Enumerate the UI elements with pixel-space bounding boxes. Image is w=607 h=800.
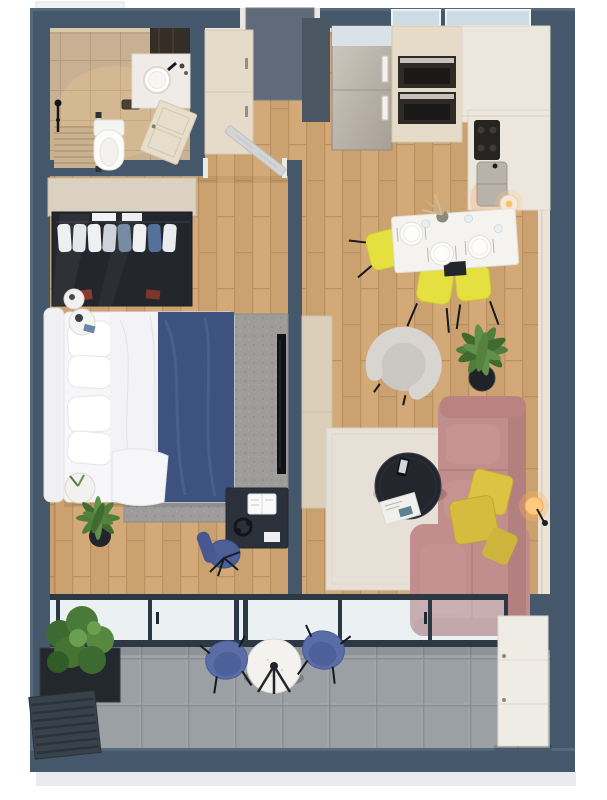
bottle bbox=[184, 71, 188, 75]
cabinet-handle bbox=[502, 698, 506, 702]
glass-wardrobe bbox=[48, 178, 196, 306]
duvet-drape bbox=[112, 449, 168, 506]
glass bbox=[422, 219, 431, 228]
door-handle bbox=[424, 612, 427, 624]
storage-box bbox=[146, 289, 161, 299]
wardrobe-handle bbox=[245, 106, 248, 117]
desk bbox=[226, 488, 288, 548]
oven-lower bbox=[398, 92, 456, 124]
cabinet-handle bbox=[502, 654, 506, 658]
parapet-highlight bbox=[30, 748, 575, 751]
oven-column bbox=[392, 26, 462, 142]
nightstand-bottom bbox=[65, 473, 95, 503]
sofa-arm-top bbox=[440, 396, 526, 418]
storage-cabinet bbox=[494, 616, 552, 751]
wall-bathroom-east bbox=[190, 28, 205, 160]
window-1 bbox=[392, 10, 440, 26]
vase bbox=[75, 314, 83, 322]
glass-post bbox=[96, 112, 102, 118]
tv-sheen bbox=[279, 340, 281, 468]
headboard bbox=[44, 308, 64, 502]
wall-bedroom-living-divider bbox=[288, 176, 302, 596]
wall-right bbox=[550, 8, 575, 748]
glass bbox=[464, 214, 473, 223]
cooktop bbox=[474, 120, 500, 160]
wall-tv bbox=[277, 334, 286, 474]
decor-item bbox=[69, 294, 75, 300]
glass-panels bbox=[50, 598, 508, 642]
floor-plan-render bbox=[0, 0, 607, 800]
exterior-slab-band bbox=[36, 772, 576, 786]
glass bbox=[494, 224, 503, 233]
floor-plan-stage bbox=[0, 0, 607, 800]
wardrobe-frame bbox=[48, 178, 196, 216]
door-jamb bbox=[203, 158, 208, 178]
oven-upper bbox=[398, 56, 456, 88]
wall-left-highlight bbox=[30, 8, 33, 748]
navy-blanket bbox=[158, 312, 234, 502]
window-2 bbox=[446, 10, 530, 26]
fridge-handle bbox=[382, 96, 388, 120]
cushion-highlight bbox=[446, 424, 500, 464]
shower-floor bbox=[54, 126, 98, 168]
fridge-handle bbox=[382, 56, 388, 82]
door-handle bbox=[156, 612, 159, 624]
balcony-parapet bbox=[30, 748, 575, 772]
dark-panel bbox=[302, 18, 330, 122]
bottle bbox=[180, 64, 185, 69]
fridge-top-sheen bbox=[332, 26, 392, 46]
louver-unit bbox=[29, 691, 101, 760]
wardrobe-handle bbox=[245, 58, 248, 69]
folded-linen bbox=[92, 213, 116, 221]
toilet bbox=[94, 120, 124, 170]
sink-faucet bbox=[493, 164, 498, 169]
fridge bbox=[332, 26, 392, 150]
glass-top-rail bbox=[50, 594, 508, 600]
paper bbox=[264, 532, 280, 542]
